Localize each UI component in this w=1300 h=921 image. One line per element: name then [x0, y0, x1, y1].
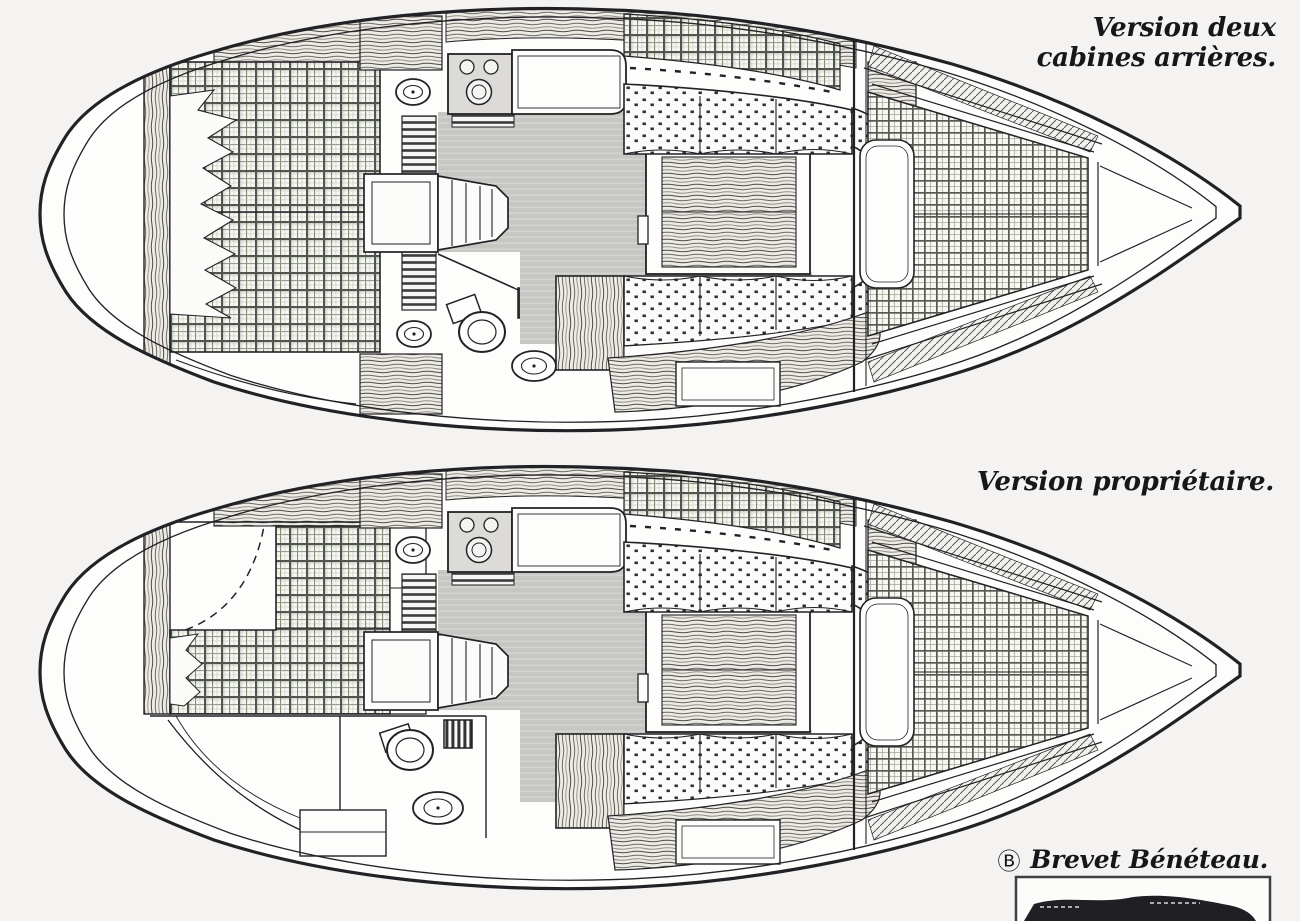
- bottom-boat-plan: [40, 465, 1240, 889]
- scanned-brochure-page: Version deux cabines arrières. Version p…: [0, 0, 1300, 921]
- brevet-text: Brevet Bénéteau.: [1030, 845, 1268, 874]
- circled-b-icon: Ⓑ: [998, 842, 1021, 876]
- caption-owner-version: Version propriétaire.: [954, 468, 1274, 498]
- caption-two-aft-cabins-version: Version deux cabines arrières.: [976, 14, 1276, 73]
- boat-floorplans-figure: [0, 0, 1300, 921]
- brevet-line: Ⓑ Brevet Bénéteau.: [998, 842, 1268, 876]
- beneteau-thumbnail: [1016, 877, 1270, 921]
